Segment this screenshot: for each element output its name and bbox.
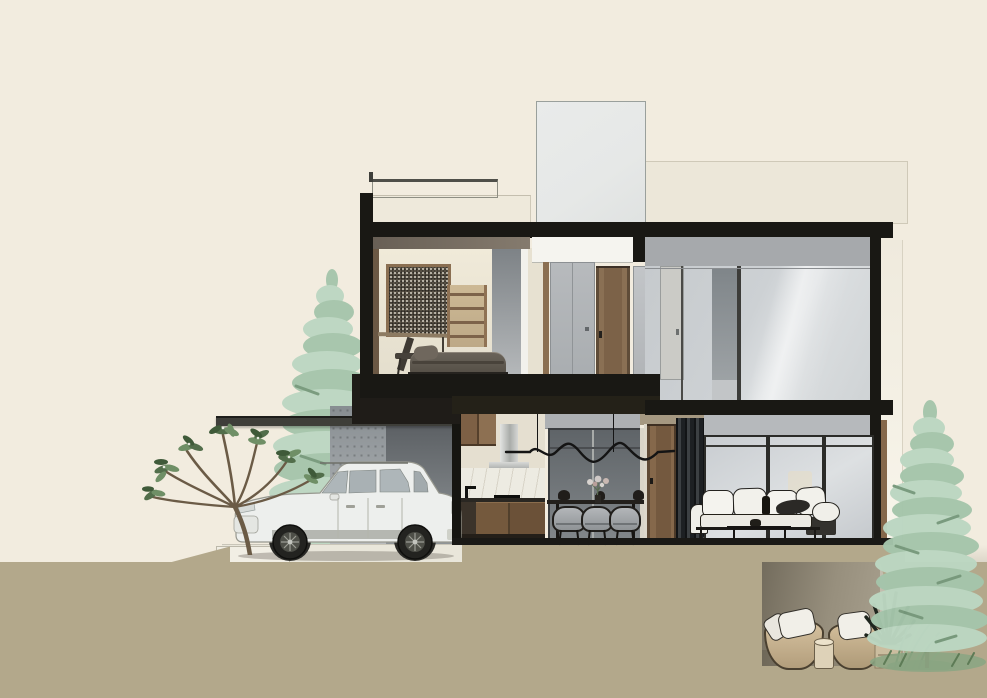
gray-wall-panel: [712, 268, 737, 380]
right-pine-tree: [866, 396, 987, 676]
left-parapet: [363, 195, 531, 223]
black-teapot: [558, 490, 570, 500]
frangipani-tree: [135, 405, 340, 555]
white-pouf: [812, 502, 840, 522]
railing-post: [369, 172, 373, 182]
flower-vase: [583, 475, 615, 503]
patio-side-table: [814, 640, 834, 669]
door-handle: [599, 331, 602, 338]
coffee-table: [727, 526, 791, 529]
framed-artwork: [386, 264, 451, 337]
left-column: [360, 193, 373, 378]
door-handle: [650, 478, 653, 484]
base-cabinet-wood: [476, 502, 545, 535]
sofa-leg: [814, 530, 816, 538]
bedroom-ceiling-band: [373, 237, 530, 249]
window-mullion: [737, 266, 741, 400]
window-frame-line: [645, 268, 870, 269]
table-bowl: [750, 519, 761, 526]
sofa-leg: [700, 530, 702, 538]
wall-cream-strip: [528, 248, 543, 378]
upper-wood-door: [596, 266, 630, 380]
right-edge-beam: [645, 400, 893, 415]
countertop: [460, 498, 545, 502]
skylight-bulkhead: [536, 101, 646, 229]
bedroom-wall-edge: [373, 248, 379, 378]
door-handle: [676, 329, 679, 335]
bed-blanket-fold: [412, 361, 504, 364]
cooktop: [494, 495, 520, 498]
wall-corner-strip: [521, 248, 528, 378]
roof-glass-railing: [372, 179, 498, 198]
roof-slab: [360, 222, 893, 238]
decor-sculpture: [762, 496, 770, 514]
living-transom-band: [704, 415, 870, 436]
upper-transom-band: [645, 237, 870, 267]
ladder-shelf: [447, 285, 487, 347]
upper-cabinet: [460, 410, 496, 446]
ground-floor-slab-line: [452, 538, 893, 545]
white-transom-panel: [532, 237, 633, 263]
gray-wall-panel-base: [712, 380, 737, 400]
window-mullion: [681, 266, 683, 400]
rear-wheel: [398, 525, 432, 559]
dining-transom-band: [545, 413, 640, 429]
gray-sliding-panel: [550, 262, 595, 380]
wood-wall-sliver: [543, 262, 549, 378]
architecture-section-rendering: [0, 0, 987, 698]
door-handle: [585, 327, 589, 331]
dining-chair: [609, 506, 641, 532]
black-teapot: [633, 490, 644, 500]
wavy-pendant-light: [500, 440, 685, 466]
mid-floor-slab: [360, 374, 660, 398]
kitchen-ceiling-slab: [452, 396, 660, 414]
